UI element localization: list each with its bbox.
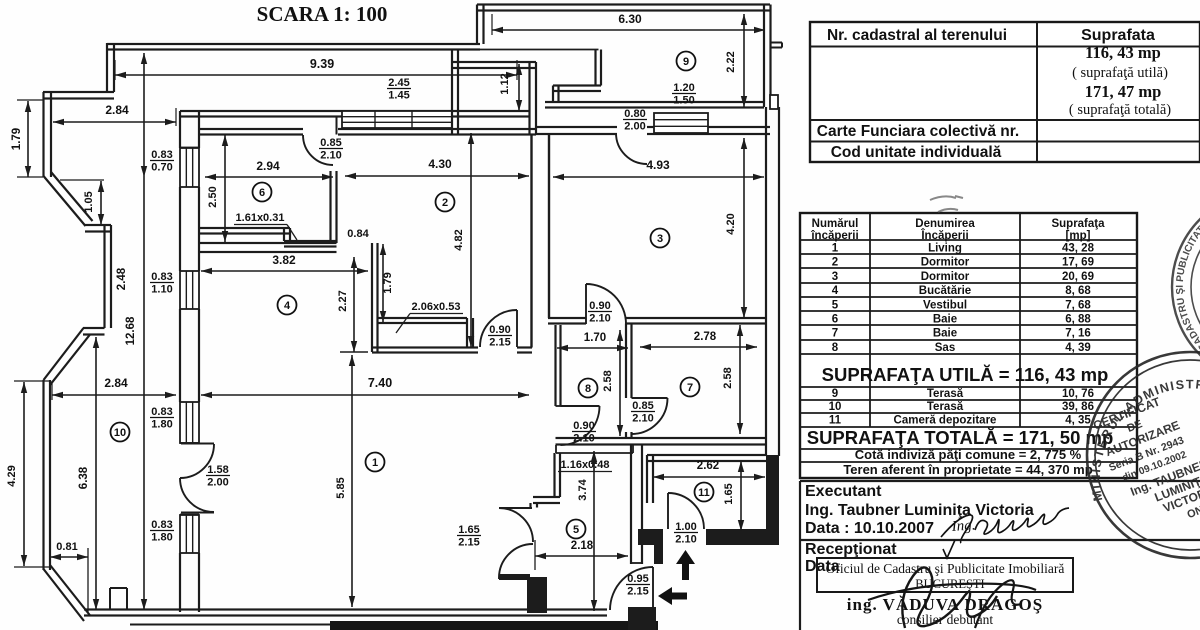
svg-text:2.10: 2.10 <box>320 150 341 162</box>
svg-text:1.79: 1.79 <box>11 128 23 150</box>
svg-text:5: 5 <box>832 299 839 311</box>
svg-text:0.83: 0.83 <box>151 149 172 161</box>
svg-text:SCARA 1: 100: SCARA 1: 100 <box>257 2 388 26</box>
svg-text:[mp]: [mp] <box>1066 230 1091 242</box>
svg-text:7: 7 <box>687 382 693 394</box>
svg-text:1.65: 1.65 <box>458 524 479 536</box>
svg-text:Baie: Baie <box>933 328 957 340</box>
svg-text:2.06x0.53: 2.06x0.53 <box>412 301 461 313</box>
svg-text:2.22: 2.22 <box>725 51 737 72</box>
svg-text:20, 69: 20, 69 <box>1062 271 1094 283</box>
svg-text:2.50: 2.50 <box>207 186 219 207</box>
svg-text:Teren aferent în proprietate =: Teren aferent în proprietate = 44, 370 m… <box>843 462 1092 477</box>
svg-text:43, 28: 43, 28 <box>1062 243 1095 255</box>
svg-text:Sas: Sas <box>935 342 955 354</box>
svg-text:10, 76: 10, 76 <box>1062 388 1094 400</box>
svg-text:2: 2 <box>442 197 448 209</box>
svg-text:2.27: 2.27 <box>337 290 349 311</box>
svg-text:Dormitor: Dormitor <box>921 257 970 269</box>
svg-text:4, 35: 4, 35 <box>1065 415 1091 427</box>
svg-text:6.38: 6.38 <box>78 466 90 489</box>
svg-text:2.45: 2.45 <box>388 77 409 89</box>
svg-text:Numărul: Numărul <box>812 218 859 230</box>
svg-text:Vestibul: Vestibul <box>923 299 967 311</box>
svg-text:2.84: 2.84 <box>104 376 128 390</box>
svg-text:Oficiul de Cadastru şi Publici: Oficiul de Cadastru şi Publicitate Imobi… <box>826 561 1065 576</box>
svg-text:1.16x0.48: 1.16x0.48 <box>561 459 610 471</box>
svg-text:1: 1 <box>832 243 839 255</box>
svg-text:SUPRAFAŢA UTILĂ = 116, 43: SUPRAFAŢA UTILĂ = 116, 43 mp <box>822 364 1109 385</box>
svg-text:0.80: 0.80 <box>624 108 645 120</box>
svg-text:0.85: 0.85 <box>320 137 341 149</box>
svg-text:4.82: 4.82 <box>453 229 465 250</box>
svg-text:( suprafaţă utilă): ( suprafaţă utilă) <box>1072 65 1168 81</box>
svg-text:Cod unitate individuală: Cod unitate individuală <box>831 144 1002 161</box>
svg-text:Cameră depozitare: Cameră depozitare <box>894 415 997 427</box>
svg-text:2.58: 2.58 <box>602 370 614 391</box>
svg-text:171, 47 mp: 171, 47 mp <box>1085 82 1162 101</box>
svg-text:4.93: 4.93 <box>646 158 670 172</box>
svg-text:2.62: 2.62 <box>697 460 719 472</box>
svg-text:Ing. Taubner Luminiţa Victoria: Ing. Taubner Luminiţa Victoria <box>805 502 1034 519</box>
svg-text:3: 3 <box>657 233 663 245</box>
svg-text:7, 16: 7, 16 <box>1065 328 1091 340</box>
svg-text:Suprafata: Suprafata <box>1081 27 1155 44</box>
svg-text:Nr. cadastral al terenului: Nr. cadastral al terenului <box>827 27 1007 44</box>
svg-text:9.39: 9.39 <box>310 57 334 71</box>
svg-text:7, 68: 7, 68 <box>1065 299 1091 311</box>
svg-text:Executant: Executant <box>805 483 882 500</box>
svg-text:0.83: 0.83 <box>151 519 172 531</box>
svg-text:1.80: 1.80 <box>151 532 172 544</box>
svg-text:2.58: 2.58 <box>722 367 734 388</box>
svg-text:2.10: 2.10 <box>573 433 594 445</box>
svg-text:4, 39: 4, 39 <box>1065 342 1091 354</box>
svg-text:Terasă: Terasă <box>927 401 964 413</box>
svg-text:2.10: 2.10 <box>632 413 653 425</box>
svg-text:7.40: 7.40 <box>368 376 392 390</box>
svg-text:Suprafaţa: Suprafaţa <box>1051 218 1105 230</box>
svg-text:Cotă indiviză păţi comune = 2,: Cotă indiviză păţi comune = 2, 775 % <box>855 447 1082 462</box>
svg-text:0.70: 0.70 <box>151 162 172 174</box>
svg-text:Recepţionat: Recepţionat <box>805 541 897 558</box>
svg-text:1: 1 <box>372 457 378 469</box>
svg-text:Dormitor: Dormitor <box>921 271 970 283</box>
svg-text:2.00: 2.00 <box>207 477 228 489</box>
svg-text:8: 8 <box>832 342 839 354</box>
svg-text:1.45: 1.45 <box>388 90 409 102</box>
svg-text:116, 43 mp: 116, 43 mp <box>1085 43 1161 62</box>
svg-text:Bucătărie: Bucătărie <box>919 285 971 297</box>
svg-text:4.29: 4.29 <box>6 465 18 486</box>
svg-text:1.10: 1.10 <box>151 284 172 296</box>
svg-text:3.82: 3.82 <box>272 253 296 267</box>
svg-text:1.65: 1.65 <box>723 483 735 504</box>
svg-text:0.85: 0.85 <box>632 400 653 412</box>
svg-text:Carte Funciara colectivă nr.: Carte Funciara colectivă nr. <box>817 123 1019 140</box>
svg-text:SUPRAFAŢA TOTALĂ = 171, 50: SUPRAFAŢA TOTALĂ = 171, 50 mp <box>807 427 1114 448</box>
svg-text:2.84: 2.84 <box>105 103 129 117</box>
svg-text:6, 88: 6, 88 <box>1065 314 1091 326</box>
svg-text:0.81: 0.81 <box>56 541 77 553</box>
svg-text:Denumirea: Denumirea <box>915 218 975 230</box>
svg-text:1.70: 1.70 <box>584 332 606 344</box>
svg-text:1.80: 1.80 <box>151 419 172 431</box>
svg-text:17, 69: 17, 69 <box>1062 257 1094 269</box>
svg-text:Living: Living <box>928 243 962 255</box>
svg-text:3.74: 3.74 <box>577 478 589 500</box>
svg-text:8, 68: 8, 68 <box>1065 285 1091 297</box>
svg-text:0.83: 0.83 <box>151 406 172 418</box>
svg-text:0.84: 0.84 <box>347 228 369 240</box>
svg-text:6: 6 <box>832 314 838 326</box>
svg-text:8: 8 <box>585 383 591 395</box>
svg-text:6: 6 <box>259 187 265 199</box>
svg-text:1.50: 1.50 <box>673 95 694 107</box>
svg-text:1.58: 1.58 <box>207 464 228 476</box>
svg-text:1.05: 1.05 <box>83 191 95 212</box>
svg-text:10: 10 <box>114 427 126 439</box>
svg-text:11: 11 <box>698 487 710 499</box>
svg-text:1.79: 1.79 <box>382 272 394 293</box>
svg-text:0.90: 0.90 <box>489 324 510 336</box>
svg-text:11: 11 <box>829 415 842 427</box>
svg-text:5.85: 5.85 <box>335 477 347 498</box>
svg-text:1.00: 1.00 <box>675 521 696 533</box>
svg-text:0.95: 0.95 <box>627 573 648 585</box>
svg-text:2.00: 2.00 <box>624 121 645 133</box>
svg-text:10: 10 <box>829 401 842 413</box>
svg-text:2: 2 <box>832 257 838 269</box>
svg-text:2.15: 2.15 <box>489 337 510 349</box>
svg-text:Terasă: Terasă <box>927 388 964 400</box>
svg-text:Data : 10.10.2007: Data : 10.10.2007 <box>805 520 934 537</box>
svg-text:4.20: 4.20 <box>725 213 737 234</box>
svg-text:5: 5 <box>573 524 579 536</box>
svg-text:încăperii: încăperii <box>810 230 858 242</box>
svg-text:4: 4 <box>832 285 839 297</box>
svg-text:1.61x0.31: 1.61x0.31 <box>236 212 285 224</box>
svg-text:2.15: 2.15 <box>627 586 648 598</box>
svg-text:0.83: 0.83 <box>151 271 172 283</box>
svg-text:( suprafaţă totală): ( suprafaţă totală) <box>1069 102 1171 118</box>
svg-text:9: 9 <box>683 56 689 68</box>
svg-text:2.10: 2.10 <box>589 313 610 325</box>
svg-text:2.18: 2.18 <box>571 540 594 552</box>
svg-text:1.12: 1.12 <box>499 73 511 94</box>
svg-text:3: 3 <box>832 271 838 283</box>
svg-text:39, 86: 39, 86 <box>1062 401 1094 413</box>
svg-text:Încăperii: Încăperii <box>920 229 968 242</box>
svg-text:4: 4 <box>284 300 291 312</box>
svg-text:2.10: 2.10 <box>675 534 696 546</box>
svg-text:0.90: 0.90 <box>573 420 594 432</box>
svg-text:4.30: 4.30 <box>428 157 452 171</box>
svg-text:12.68: 12.68 <box>125 316 137 345</box>
svg-text:9: 9 <box>832 388 838 400</box>
svg-text:2.15: 2.15 <box>458 537 479 549</box>
svg-text:0.90: 0.90 <box>589 300 610 312</box>
svg-text:2.94: 2.94 <box>256 159 280 173</box>
svg-text:1.20: 1.20 <box>673 82 694 94</box>
svg-text:2.48: 2.48 <box>116 267 128 290</box>
svg-text:7: 7 <box>832 328 838 340</box>
svg-text:6.30: 6.30 <box>618 12 642 26</box>
svg-text:Baie: Baie <box>933 314 957 326</box>
svg-text:2.78: 2.78 <box>694 331 717 343</box>
